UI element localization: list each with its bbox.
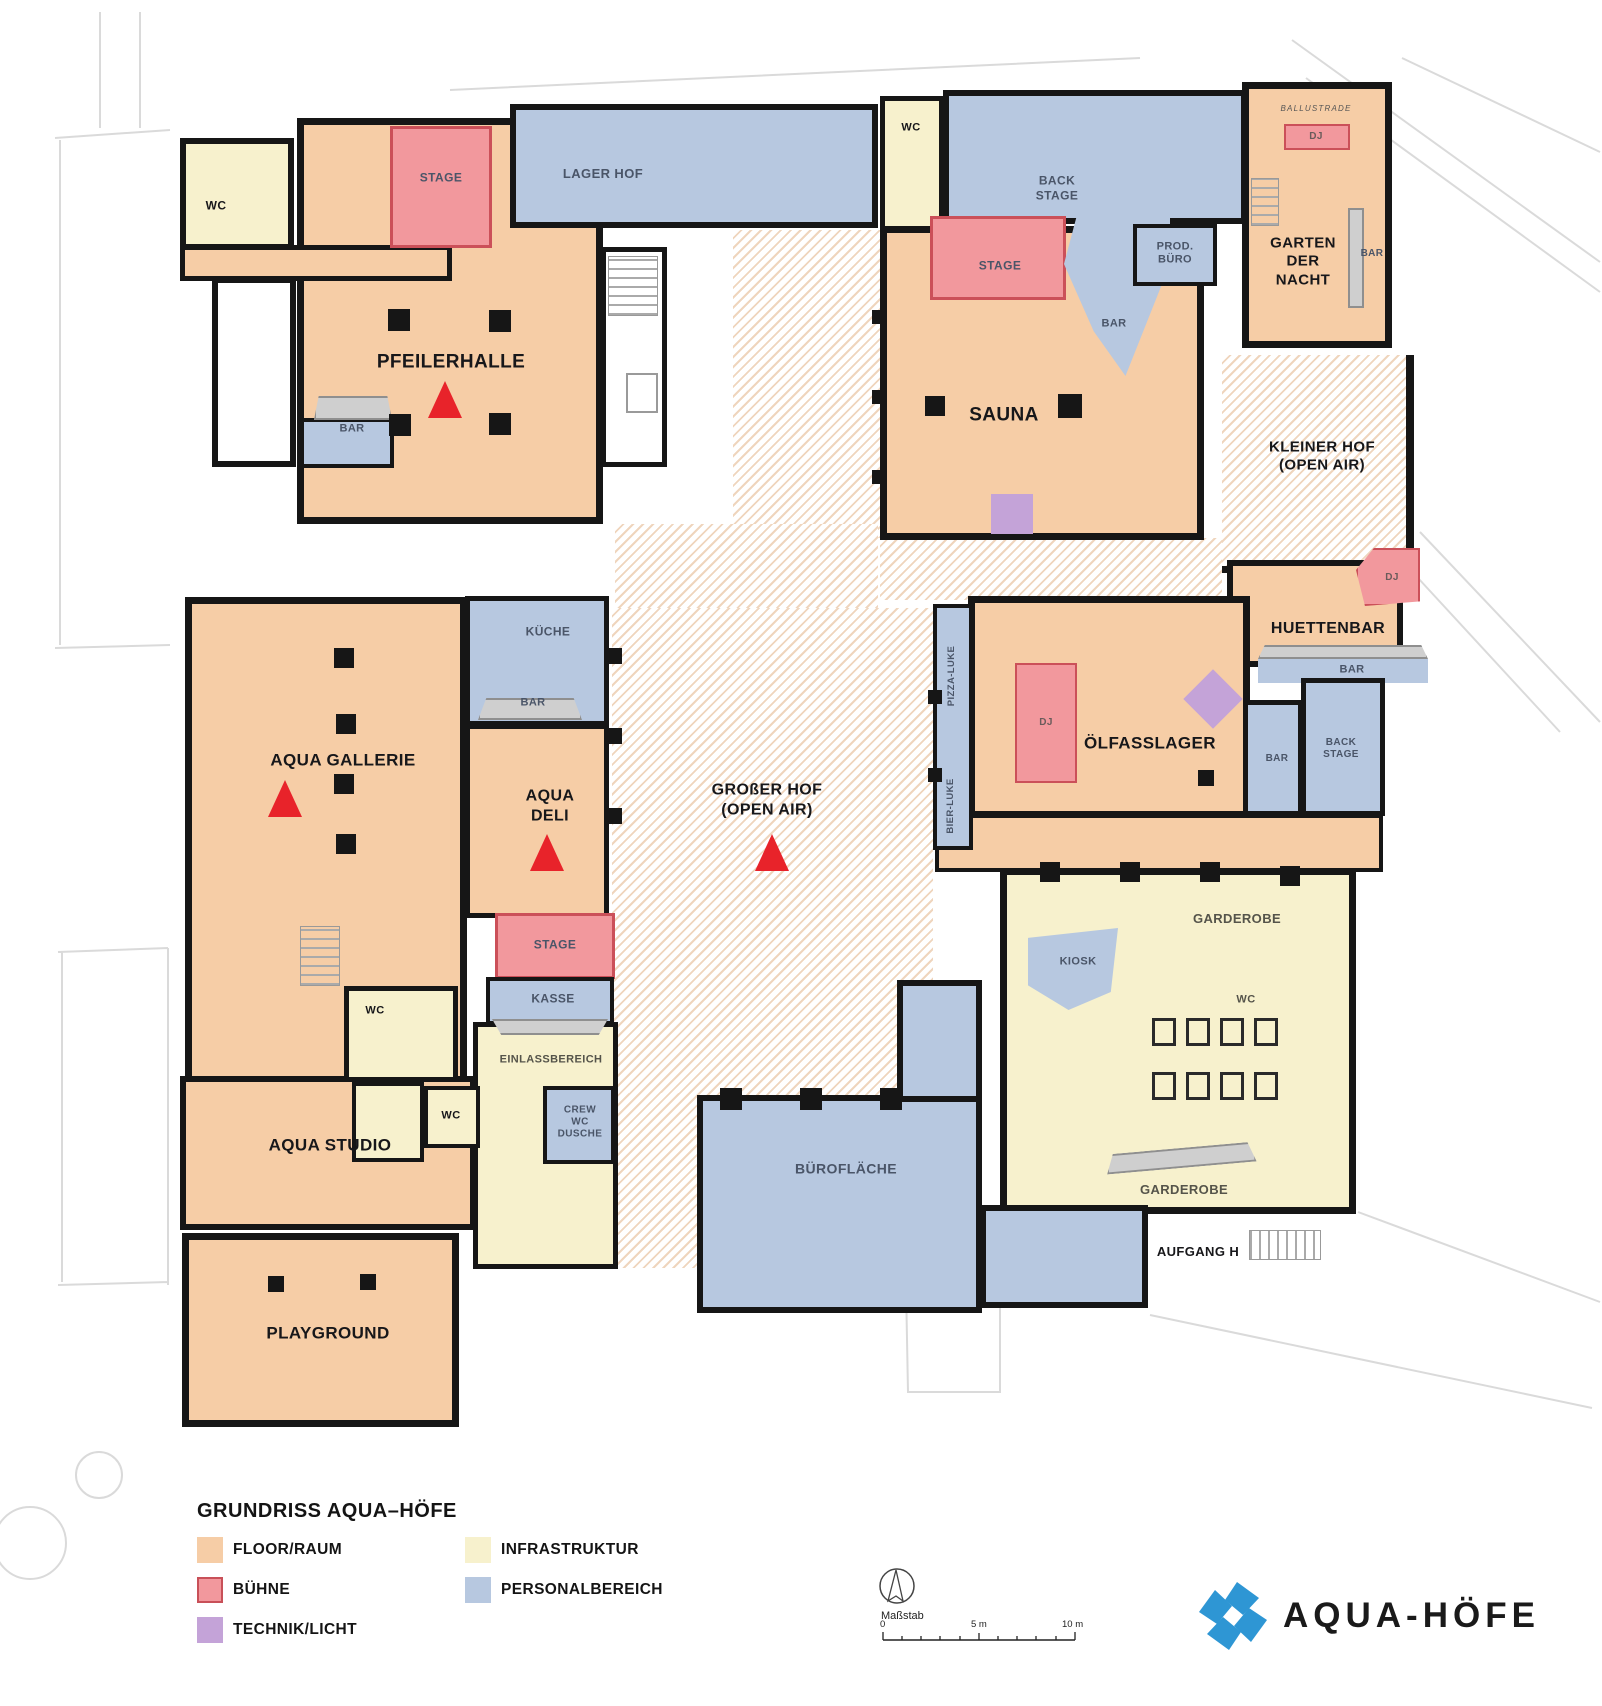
- column-pillar: [489, 413, 511, 435]
- stairs-icon: [1249, 1230, 1321, 1260]
- label-playground: PLAYGROUND: [266, 1324, 389, 1345]
- label-wc-garderobe: WC: [1236, 993, 1255, 1006]
- wall-pillar: [872, 310, 886, 324]
- wall-pillar: [1040, 862, 1060, 882]
- wall-pillar: [800, 1088, 822, 1110]
- label-garten-der-nacht: GARTEN DER NACHT: [1270, 235, 1336, 290]
- wc-stall: [1152, 1072, 1176, 1100]
- column-pillar: [334, 774, 354, 794]
- column-pillar: [360, 1274, 376, 1290]
- label-bar-pfeilerhalle: BAR: [339, 422, 364, 435]
- label-kueche: KÜCHE: [526, 625, 571, 640]
- wc-stall: [1220, 1018, 1244, 1046]
- kasse-counter: [492, 1019, 608, 1035]
- label-aqua-deli: AQUA DELI: [526, 786, 575, 825]
- label-wc-northwest: WC: [206, 199, 227, 214]
- bar-counter-pfeilerhalle: [314, 396, 392, 420]
- label-back-stage-huetten: BACK STAGE: [1323, 737, 1359, 761]
- column-pillar: [388, 309, 410, 331]
- label-wc-north: WC: [901, 121, 920, 134]
- label-bar-garten: BAR: [1361, 248, 1384, 260]
- label-pfeilerhalle: PFEILERHALLE: [377, 350, 525, 373]
- label-lager-hof: LAGER HOF: [563, 166, 643, 182]
- column-pillar: [336, 714, 356, 734]
- label-huettenbar: HUETTENBAR: [1271, 619, 1385, 639]
- bar-counter-huettenbar: [1258, 645, 1428, 659]
- wall-pillar: [872, 390, 886, 404]
- label-stage-deli: STAGE: [534, 938, 576, 953]
- label-stage-sauna: STAGE: [979, 259, 1021, 274]
- label-prod-buero: PROD. BÜRO: [1157, 241, 1194, 268]
- stairs-icon: [1251, 178, 1279, 226]
- label-oelfasslager: ÖLFASSLAGER: [1084, 734, 1216, 755]
- label-wc-studio: WC: [441, 1109, 460, 1122]
- label-grosser-hof: GROßER HOF (OPEN AIR): [712, 780, 823, 819]
- label-bar-sauna: BAR: [1101, 317, 1126, 330]
- marker-triangle-pfeilerhalle: [428, 381, 462, 418]
- wc-stall: [1220, 1072, 1244, 1100]
- stairs-icon: [300, 926, 340, 986]
- wall-pillar: [606, 728, 622, 744]
- label-ballustrade: BALLUSTRADE: [1281, 104, 1352, 114]
- wall-pillar: [606, 648, 622, 664]
- wc-stall: [1186, 1072, 1210, 1100]
- label-crew-wc-dusche: CREW WC DUSCHE: [558, 1105, 603, 1142]
- label-bar-huettenbar: BAR: [1339, 663, 1364, 676]
- column-pillar: [1058, 394, 1082, 418]
- label-stage-pfeilerhalle: STAGE: [420, 171, 462, 186]
- wall-pillar: [880, 1088, 902, 1110]
- column-pillar: [925, 396, 945, 416]
- column-pillar: [1198, 770, 1214, 786]
- stairs-icon: [608, 256, 658, 316]
- label-wc-mitte: WC: [365, 1004, 384, 1017]
- wall-pillar: [928, 690, 942, 704]
- wall-pillar: [1280, 866, 1300, 886]
- wall-pillar: [928, 768, 942, 782]
- label-back-stage-north: BACK STAGE: [1036, 173, 1078, 202]
- wc-stall: [1254, 1018, 1278, 1046]
- label-kleiner-hof: KLEINER HOF (OPEN AIR): [1269, 439, 1375, 476]
- label-dj-garten: DJ: [1309, 131, 1323, 143]
- column-pillar: [389, 414, 411, 436]
- column-pillar: [334, 648, 354, 668]
- label-garderobe-nord: GARDEROBE: [1193, 911, 1281, 927]
- floorplan-canvas: WC STAGE LAGER HOF PFEILERHALLE BAR WC B…: [0, 0, 1602, 1706]
- wall-pillar: [606, 808, 622, 824]
- column-pillar: [268, 1276, 284, 1292]
- wc-stall: [1254, 1072, 1278, 1100]
- label-einlassbereich: EINLASSBEREICH: [500, 1053, 603, 1066]
- column-pillar: [489, 310, 511, 332]
- label-garderobe-sued: GARDEROBE: [1140, 1182, 1228, 1198]
- marker-triangle-aqua-gallerie: [268, 780, 302, 817]
- label-aqua-gallerie: AQUA GALLERIE: [270, 751, 415, 772]
- label-aufgang-h: AUFGANG H: [1157, 1244, 1239, 1260]
- wall-pillar: [872, 470, 886, 484]
- label-bar-huetten-side: BAR: [1266, 753, 1289, 765]
- label-dj-oelfasslager: DJ: [1039, 717, 1053, 729]
- label-aqua-studio: AQUA STUDIO: [269, 1136, 392, 1157]
- label-sauna: SAUNA: [969, 403, 1039, 426]
- wc-stall: [1152, 1018, 1176, 1046]
- label-bar-kueche: BAR: [520, 696, 545, 709]
- label-pizza-luke: PIZZA-LUKE: [946, 646, 958, 706]
- marker-triangle-aqua-deli: [530, 834, 564, 871]
- column-pillar: [336, 834, 356, 854]
- label-kiosk: KIOSK: [1060, 955, 1097, 968]
- label-bier-luke: BIER-LUKE: [945, 778, 957, 833]
- label-kasse: KASSE: [531, 992, 574, 1007]
- label-buroflaeche: BÜROFLÄCHE: [795, 1160, 897, 1177]
- wall-pillar: [1200, 862, 1220, 882]
- marker-triangle-grosser-hof: [755, 834, 789, 871]
- wall-pillar: [1120, 862, 1140, 882]
- label-dj-huettenbar: DJ: [1385, 572, 1399, 584]
- wc-stall: [1186, 1018, 1210, 1046]
- wall-pillar: [720, 1088, 742, 1110]
